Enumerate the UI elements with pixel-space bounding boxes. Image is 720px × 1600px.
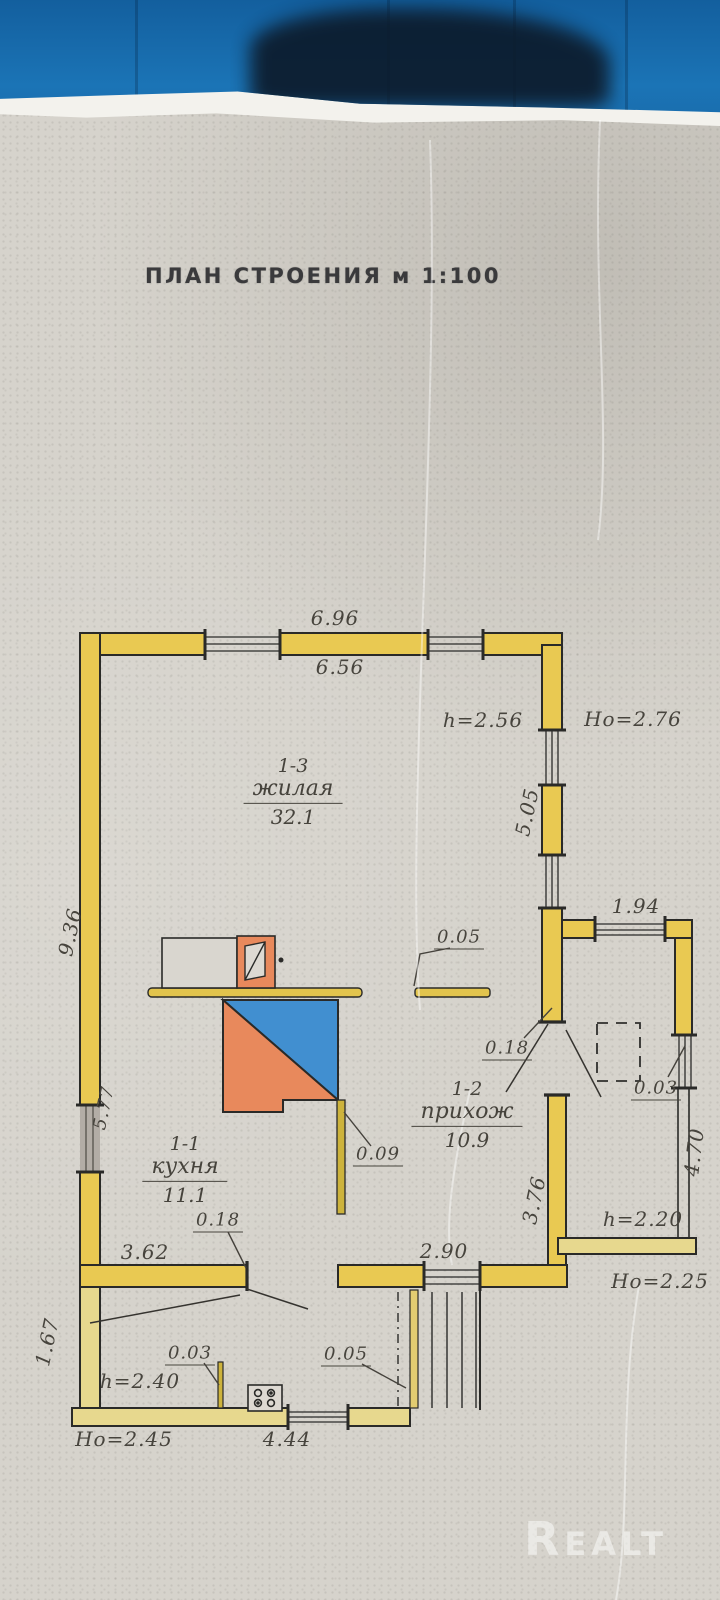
wall-south bbox=[80, 1265, 247, 1287]
stove-firebox bbox=[237, 936, 284, 988]
room-name: жилая bbox=[244, 777, 343, 804]
partition-kitchen-hall bbox=[337, 1100, 345, 1214]
dim-annex-height: h=2.20 bbox=[603, 1207, 683, 1231]
dim-top-inner: 6.56 bbox=[316, 655, 365, 679]
realt-watermark: Realt bbox=[524, 1512, 668, 1566]
wall-top bbox=[95, 633, 205, 655]
room-number: 1-3 bbox=[244, 756, 343, 777]
room-area: 32.1 bbox=[244, 804, 343, 828]
room-label-hall: 1-2 прихож 10.9 bbox=[411, 1079, 522, 1151]
room-area: 10.9 bbox=[411, 1127, 522, 1151]
dim-kitchen-width: 3.62 bbox=[121, 1240, 170, 1264]
dim-hall-width: 2.90 bbox=[420, 1239, 469, 1263]
dim-porch-height: h=2.40 bbox=[100, 1369, 180, 1393]
wall-left bbox=[80, 633, 100, 1105]
masonry-stove bbox=[223, 1000, 338, 1112]
wall-right bbox=[542, 785, 562, 855]
wall-annex-top bbox=[665, 920, 692, 938]
wall-hall-east bbox=[548, 1095, 566, 1287]
window-annex-top bbox=[595, 916, 665, 942]
wall-top bbox=[280, 633, 428, 655]
room-name: прихож bbox=[411, 1100, 522, 1127]
wall-left-porch bbox=[80, 1287, 100, 1426]
dim-annex-top: 1.94 bbox=[612, 894, 661, 918]
dim-annex-wall-thickness: 0.03 bbox=[631, 1078, 681, 1101]
room-number: 1-1 bbox=[142, 1134, 227, 1155]
wall-porch-bottom bbox=[348, 1408, 410, 1426]
dim-partition-thickness: 0.09 bbox=[353, 1144, 403, 1167]
dim-porch-height-outer: Ho=2.45 bbox=[75, 1427, 173, 1451]
room-name: кухня bbox=[142, 1155, 227, 1182]
wall-right bbox=[542, 908, 562, 1022]
partition-stub bbox=[410, 1290, 418, 1408]
window-top-2 bbox=[428, 629, 483, 660]
dashed-hatch-square bbox=[597, 1023, 640, 1081]
window-right-1 bbox=[538, 730, 566, 785]
room-label-living: 1-3 жилая 32.1 bbox=[244, 756, 343, 828]
wall-right bbox=[542, 645, 562, 730]
wall-south bbox=[338, 1265, 424, 1287]
partition-shelf bbox=[148, 988, 490, 997]
dim-porch-width: 4.44 bbox=[263, 1427, 312, 1451]
furniture-bed bbox=[162, 938, 237, 988]
dim-top-outer: 6.96 bbox=[311, 606, 360, 630]
dim-height-main: h=2.56 bbox=[443, 708, 523, 732]
dim-shelf-thickness: 0.05 bbox=[434, 927, 484, 950]
wall-annex-bottom bbox=[558, 1238, 696, 1254]
entry-door-opening bbox=[424, 1261, 480, 1291]
dim-height-outer-main: Ho=2.76 bbox=[584, 707, 682, 731]
room-number: 1-2 bbox=[411, 1079, 522, 1100]
window-top-1 bbox=[205, 629, 280, 660]
dim-porch-partition-thickness: 0.03 bbox=[165, 1343, 215, 1366]
room-area: 11.1 bbox=[142, 1182, 227, 1206]
paper-creases bbox=[416, 120, 640, 1600]
dim-entry-wall-thickness: 0.18 bbox=[482, 1038, 532, 1061]
dim-porch-stub-thickness: 0.05 bbox=[321, 1344, 371, 1367]
dim-kitchen-wall-thickness: 0.18 bbox=[193, 1210, 243, 1233]
gas-stove-icon bbox=[248, 1385, 282, 1411]
wall-annex-right bbox=[675, 938, 692, 1035]
wall-south bbox=[480, 1265, 567, 1287]
photographed-floor-plan: ПЛАН СТРОЕНИЯ м 1:100 bbox=[0, 0, 720, 1600]
dim-annex-height-outer: Ho=2.25 bbox=[611, 1269, 709, 1293]
room-label-kitchen: 1-1 кухня 11.1 bbox=[142, 1134, 227, 1206]
wall-annex-top bbox=[562, 920, 595, 938]
window-right-2 bbox=[538, 855, 566, 908]
